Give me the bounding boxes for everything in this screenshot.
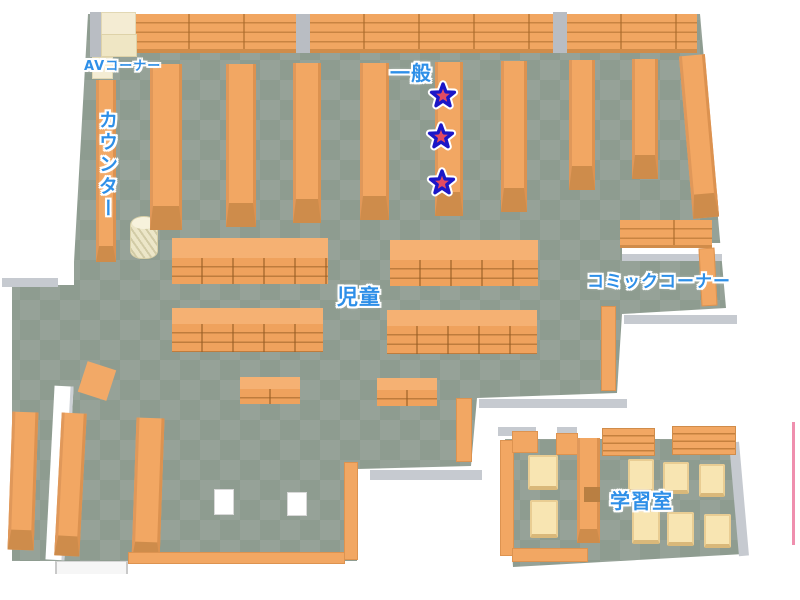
label-av-corner: AVコーナー (84, 55, 161, 74)
study-desk (704, 514, 731, 548)
label-comic-corner: コミックコーナー (587, 267, 731, 292)
bookshelf-row (150, 64, 182, 230)
star-marker-icon[interactable] (424, 165, 460, 201)
label-children: 児童 (337, 281, 381, 311)
wall-pillar (90, 12, 101, 57)
comic-wall-shelf (601, 306, 616, 391)
bookshelf-row (293, 63, 321, 223)
study-desk (530, 500, 558, 538)
study-desk (667, 512, 694, 546)
low-table (240, 377, 300, 404)
bookshelf-top-wall (310, 14, 553, 53)
low-bookshelf (172, 238, 328, 284)
label-counter: カウンター (94, 110, 121, 220)
bookshelf-row (501, 61, 527, 212)
low-bookshelf (172, 308, 323, 352)
wall-shade (624, 315, 737, 324)
study-desk (699, 464, 725, 497)
entrance-door[interactable] (55, 561, 128, 574)
wall-pillar (553, 12, 567, 53)
star-marker-icon[interactable] (425, 78, 461, 114)
bookshelf-row (569, 60, 595, 190)
study-wall-shelf (512, 431, 538, 453)
wall-shelf (344, 462, 358, 560)
study-desk (632, 510, 660, 544)
wall-shade (479, 399, 627, 408)
low-bookshelf (390, 240, 538, 286)
study-wall-shelf (512, 548, 588, 562)
comic-shelf (620, 220, 712, 248)
study-divider-gap (584, 487, 600, 502)
bookshelf-row (360, 63, 389, 220)
bookshelf-row (8, 412, 39, 551)
study-top-shelf (602, 428, 655, 456)
wall-shelf (128, 552, 345, 564)
wall-pillar (296, 14, 310, 53)
wall-shelf (456, 398, 472, 462)
study-top-shelf (672, 426, 736, 455)
bookshelf-row (632, 59, 658, 179)
av-shelf (101, 12, 136, 35)
bookshelf-top-wall (135, 14, 296, 53)
study-wall-shelf (556, 433, 578, 455)
low-bookshelf (387, 310, 537, 354)
white-table (287, 492, 307, 516)
bookshelf-row (226, 64, 256, 227)
wall-shade (2, 278, 58, 287)
study-wall-shelf (500, 440, 514, 556)
bookshelf-row (131, 418, 164, 563)
star-marker-icon[interactable] (423, 119, 459, 155)
label-study-room: 学習室 (610, 485, 673, 514)
wall-shade (370, 470, 482, 480)
study-desk (528, 455, 558, 490)
av-shelf (101, 34, 137, 57)
bookshelf-top-wall (567, 14, 697, 53)
low-table (377, 378, 437, 406)
library-floor-map: AVコーナー カウンター 一般 児童 コミックコーナー 学習室 (0, 0, 800, 600)
map-edge-line (792, 422, 795, 545)
white-table (214, 489, 234, 515)
